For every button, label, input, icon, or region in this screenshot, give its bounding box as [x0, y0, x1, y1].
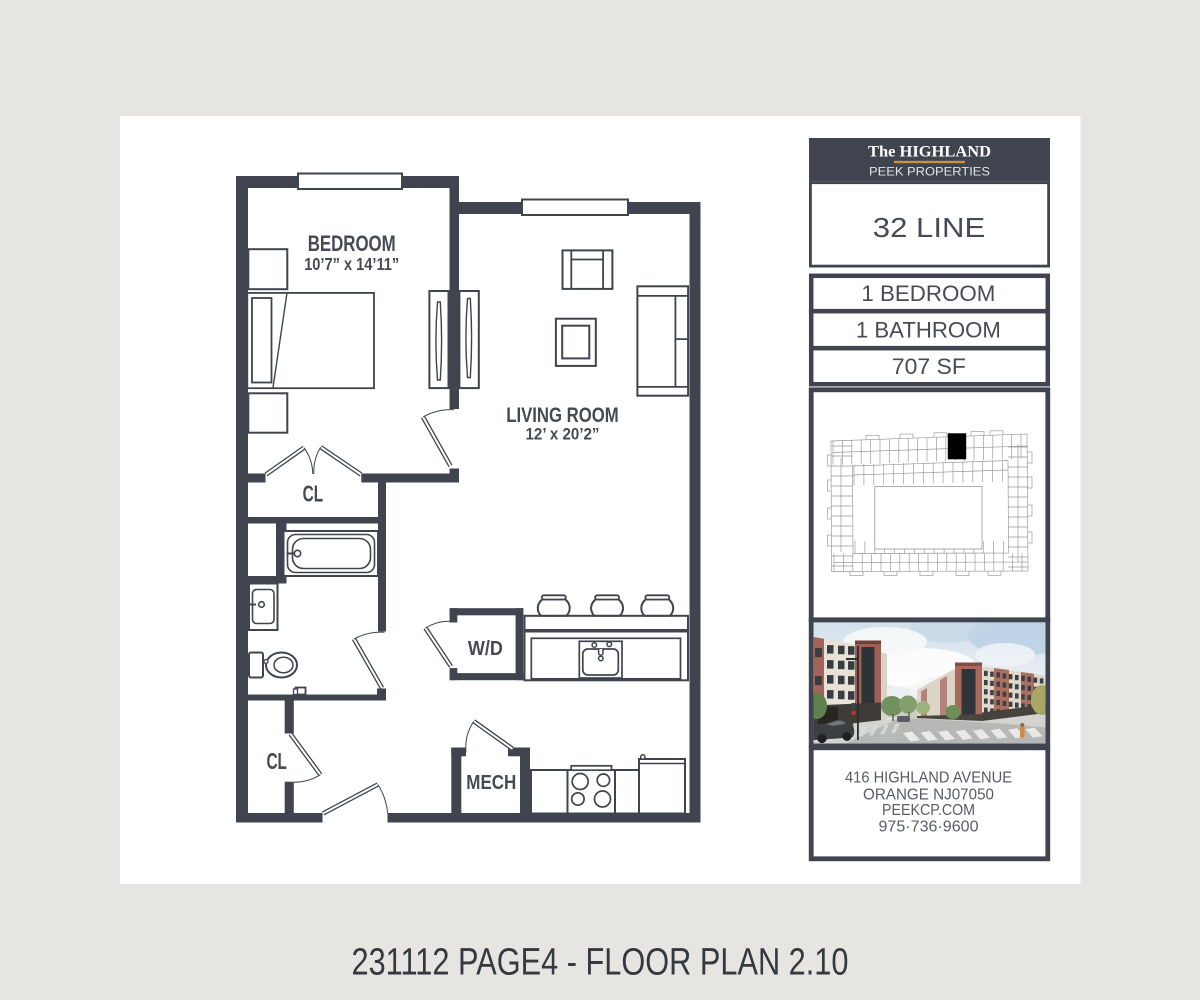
svg-text:707 SF: 707 SF — [892, 354, 966, 379]
svg-text:1 BATHROOM: 1 BATHROOM — [856, 317, 1001, 342]
svg-text:CL: CL — [303, 481, 324, 507]
svg-text:1 BEDROOM: 1 BEDROOM — [861, 281, 995, 306]
svg-text:The HIGHLAND: The HIGHLAND — [868, 144, 991, 161]
svg-text:975·736·9600: 975·736·9600 — [879, 818, 979, 835]
svg-text:12’ x 20’2”: 12’ x 20’2” — [526, 425, 600, 444]
svg-text:231112 PAGE4 - FLOOR PLAN 2.10: 231112 PAGE4 - FLOOR PLAN 2.10 — [352, 942, 849, 984]
svg-text:MECH: MECH — [466, 771, 516, 794]
svg-text:W/D: W/D — [468, 637, 503, 660]
svg-text:CL: CL — [266, 748, 287, 774]
svg-text:10’7” x 14’11”: 10’7” x 14’11” — [304, 254, 399, 274]
svg-text:416 HIGHLAND AVENUE: 416 HIGHLAND AVENUE — [845, 770, 1012, 787]
svg-text:ORANGE NJ07050: ORANGE NJ07050 — [863, 787, 994, 804]
svg-text:PEEK PROPERTIES: PEEK PROPERTIES — [869, 167, 990, 179]
svg-text:32 LINE: 32 LINE — [873, 212, 986, 243]
svg-text:LIVING ROOM: LIVING ROOM — [506, 403, 619, 427]
svg-text:BEDROOM: BEDROOM — [308, 231, 396, 256]
svg-text:PEEKCP.COM: PEEKCP.COM — [882, 802, 975, 819]
